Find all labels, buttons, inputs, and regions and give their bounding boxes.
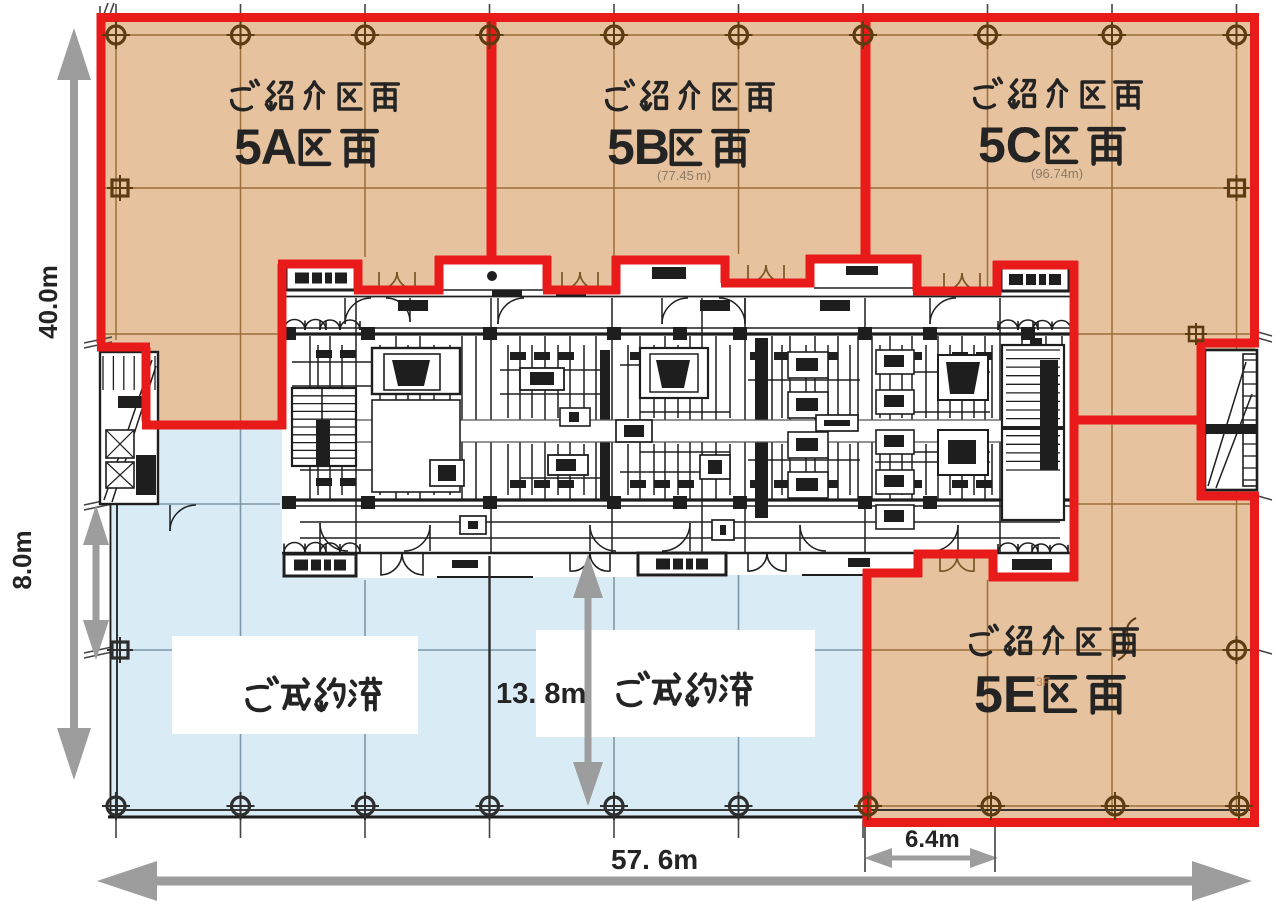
- svg-text:57. 6m: 57. 6m: [611, 844, 698, 875]
- svg-text:5E: 5E: [974, 666, 1038, 724]
- svg-text:5B: 5B: [607, 119, 669, 175]
- svg-text:(77.45: (77.45: [657, 168, 694, 183]
- svg-text:m): m): [696, 168, 711, 183]
- svg-text:13. 8m: 13. 8m: [496, 678, 586, 710]
- svg-text:5A: 5A: [234, 119, 296, 175]
- svg-text:40.0m: 40.0m: [33, 265, 63, 339]
- svg-text:6.4m: 6.4m: [905, 826, 960, 853]
- svg-text:3F: 3F: [1036, 675, 1050, 689]
- svg-text:(96.74m): (96.74m): [1031, 166, 1083, 181]
- svg-text:5C: 5C: [978, 117, 1042, 173]
- svg-text:8.0m: 8.0m: [7, 530, 37, 589]
